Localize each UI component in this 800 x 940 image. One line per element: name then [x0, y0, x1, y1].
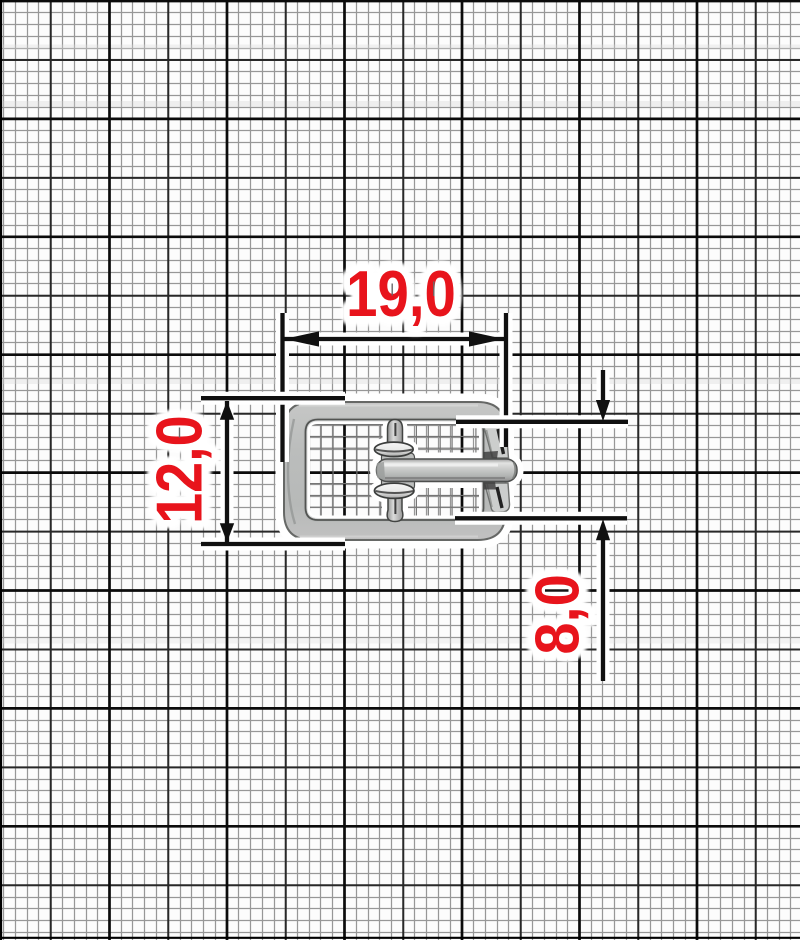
svg-text:8,0: 8,0 — [523, 574, 592, 654]
svg-text:19,0: 19,0 — [346, 257, 456, 330]
